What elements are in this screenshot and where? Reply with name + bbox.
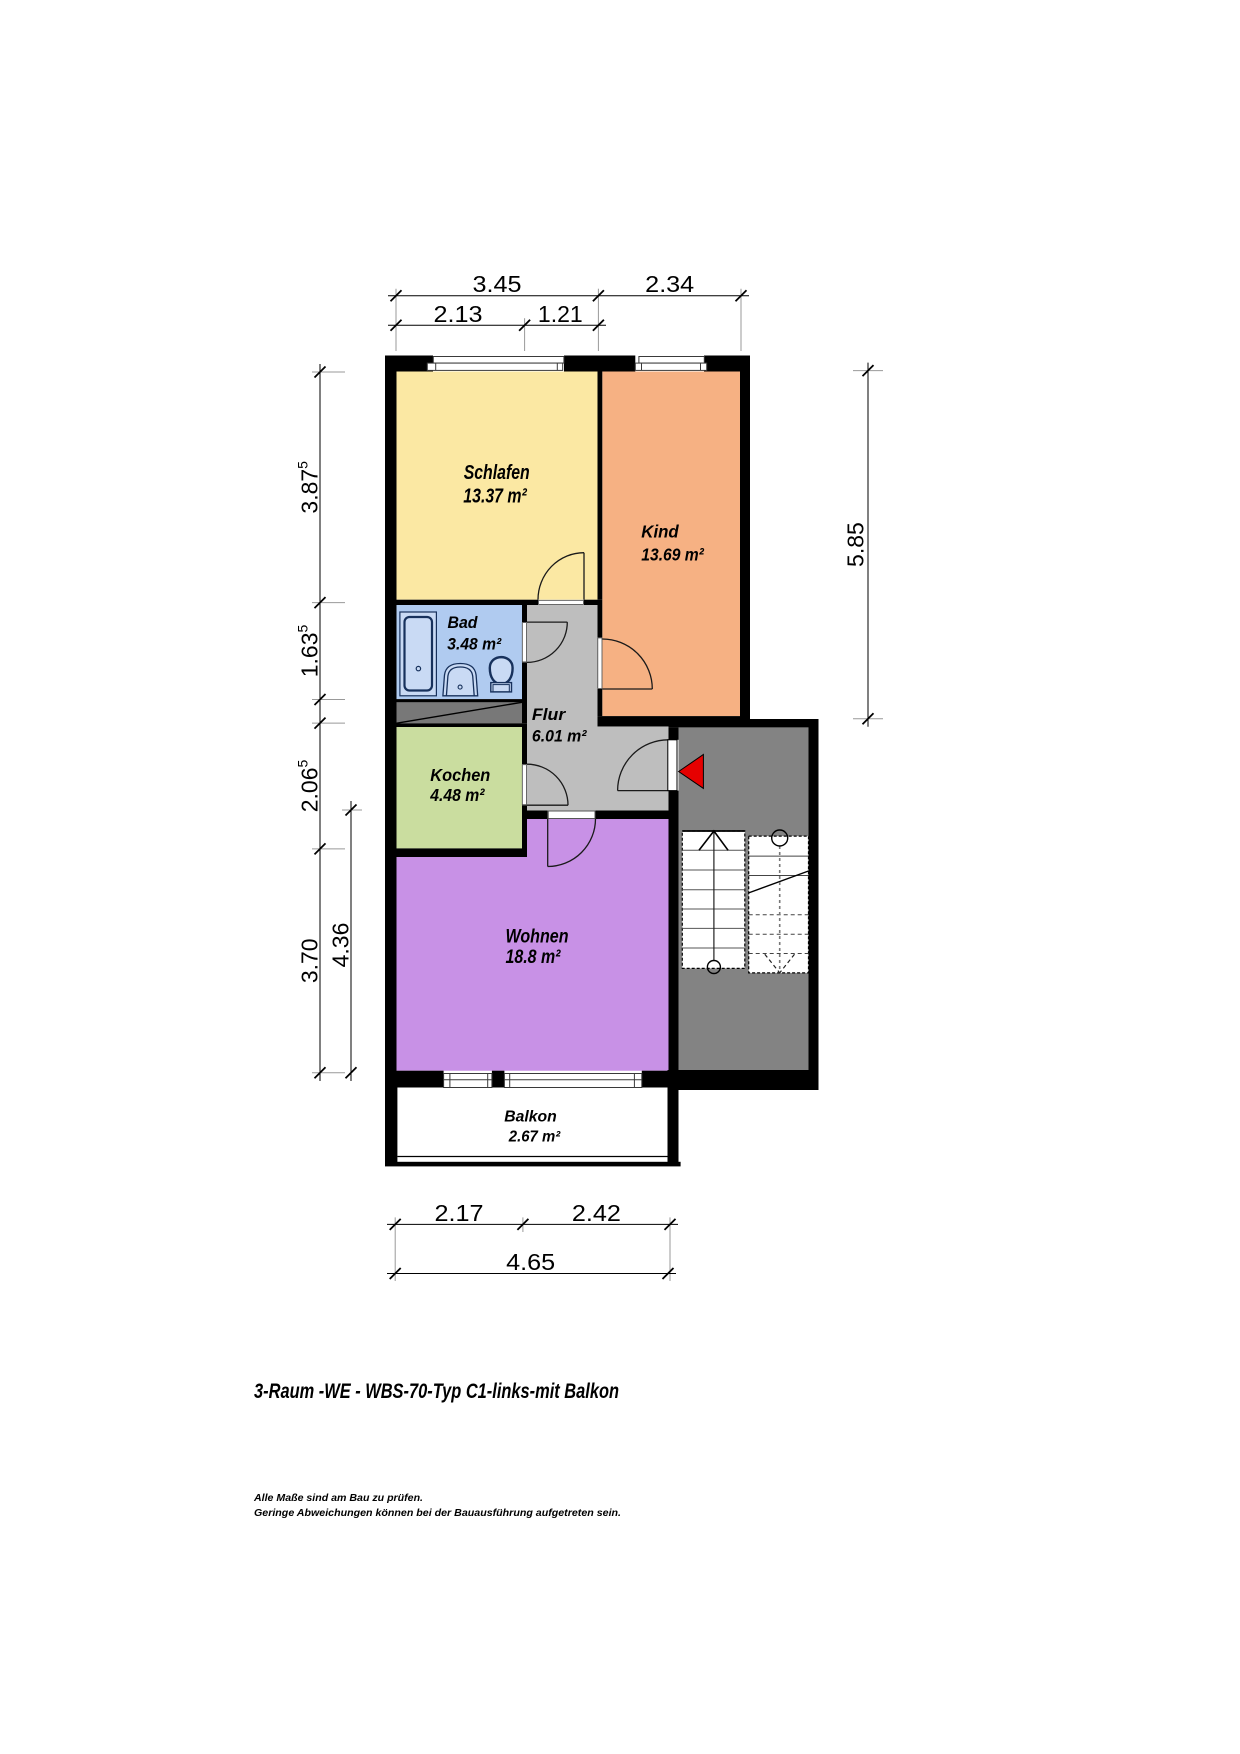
- svg-text:5.85: 5.85: [843, 522, 869, 567]
- svg-text:13.37 m²: 13.37 m²: [463, 485, 528, 507]
- svg-text:2.67 m²: 2.67 m²: [508, 1128, 561, 1145]
- svg-text:4.48 m²: 4.48 m²: [429, 785, 485, 805]
- svg-text:Wohnen: Wohnen: [506, 925, 569, 947]
- svg-text:1.21: 1.21: [538, 301, 583, 327]
- svg-text:13.69 m²: 13.69 m²: [641, 544, 705, 564]
- svg-text:6.01 m²: 6.01 m²: [532, 727, 587, 745]
- svg-text:3.48 m²: 3.48 m²: [447, 636, 501, 654]
- svg-text:3-Raum -WE - WBS-70-Typ C1-lin: 3-Raum -WE - WBS-70-Typ C1-links-mit Bal…: [254, 1379, 619, 1403]
- svg-text:2.34: 2.34: [645, 271, 694, 297]
- svg-text:Balkon: Balkon: [504, 1109, 557, 1126]
- svg-text:Bad: Bad: [448, 614, 479, 632]
- svg-text:2.13: 2.13: [434, 301, 483, 327]
- svg-text:3.70: 3.70: [297, 938, 323, 983]
- svg-text:Kind: Kind: [641, 522, 680, 542]
- svg-text:Kochen: Kochen: [430, 765, 490, 785]
- svg-text:2.17: 2.17: [435, 1200, 484, 1226]
- svg-text:4.65: 4.65: [506, 1249, 555, 1275]
- svg-text:Alle Maße sind am Bau zu prüfe: Alle Maße sind am Bau zu prüfen.: [253, 1492, 423, 1504]
- svg-text:3.45: 3.45: [473, 271, 522, 297]
- svg-text:Flur: Flur: [532, 706, 567, 724]
- svg-text:2.42: 2.42: [572, 1200, 621, 1226]
- svg-text:Schlafen: Schlafen: [464, 462, 530, 484]
- svg-text:18.8 m²: 18.8 m²: [506, 946, 561, 968]
- svg-text:4.36: 4.36: [328, 923, 354, 968]
- svg-text:Geringe Abweichungen können be: Geringe Abweichungen können bei der Baua…: [254, 1507, 621, 1519]
